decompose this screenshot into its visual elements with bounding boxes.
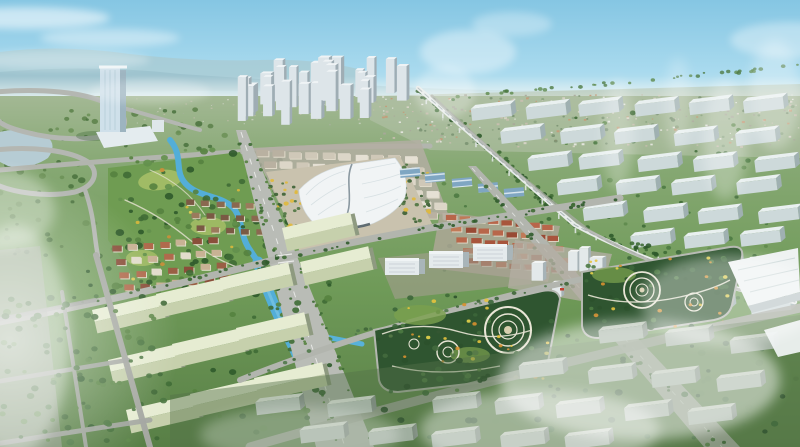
mall-sign	[560, 288, 564, 291]
office-block	[385, 258, 425, 275]
office-block	[429, 251, 469, 268]
office-block	[473, 244, 513, 261]
aerial-masterplan-rendering	[0, 0, 800, 447]
rendering-canvas	[0, 0, 800, 447]
annex-block	[152, 120, 164, 132]
